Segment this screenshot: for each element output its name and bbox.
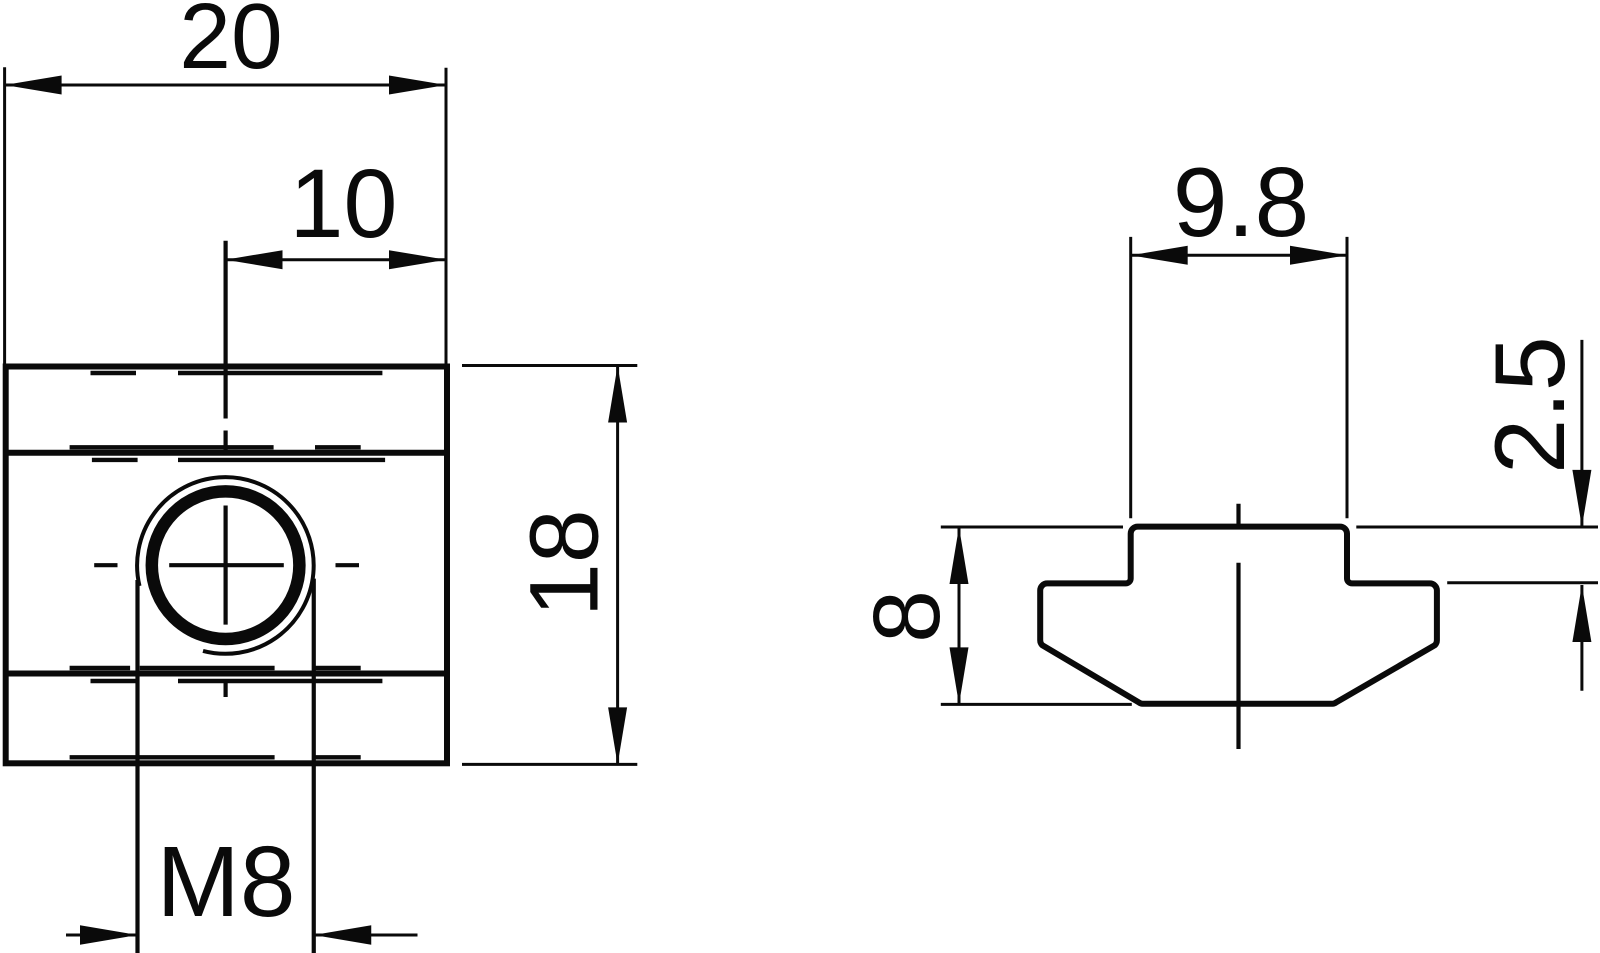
svg-text:M8: M8	[157, 826, 296, 938]
svg-text:9.8: 9.8	[1173, 147, 1309, 257]
svg-text:8: 8	[854, 590, 960, 643]
svg-text:2.5: 2.5	[1474, 336, 1585, 474]
svg-text:10: 10	[290, 149, 398, 258]
svg-text:20: 20	[179, 0, 282, 88]
svg-text:18: 18	[510, 509, 619, 617]
